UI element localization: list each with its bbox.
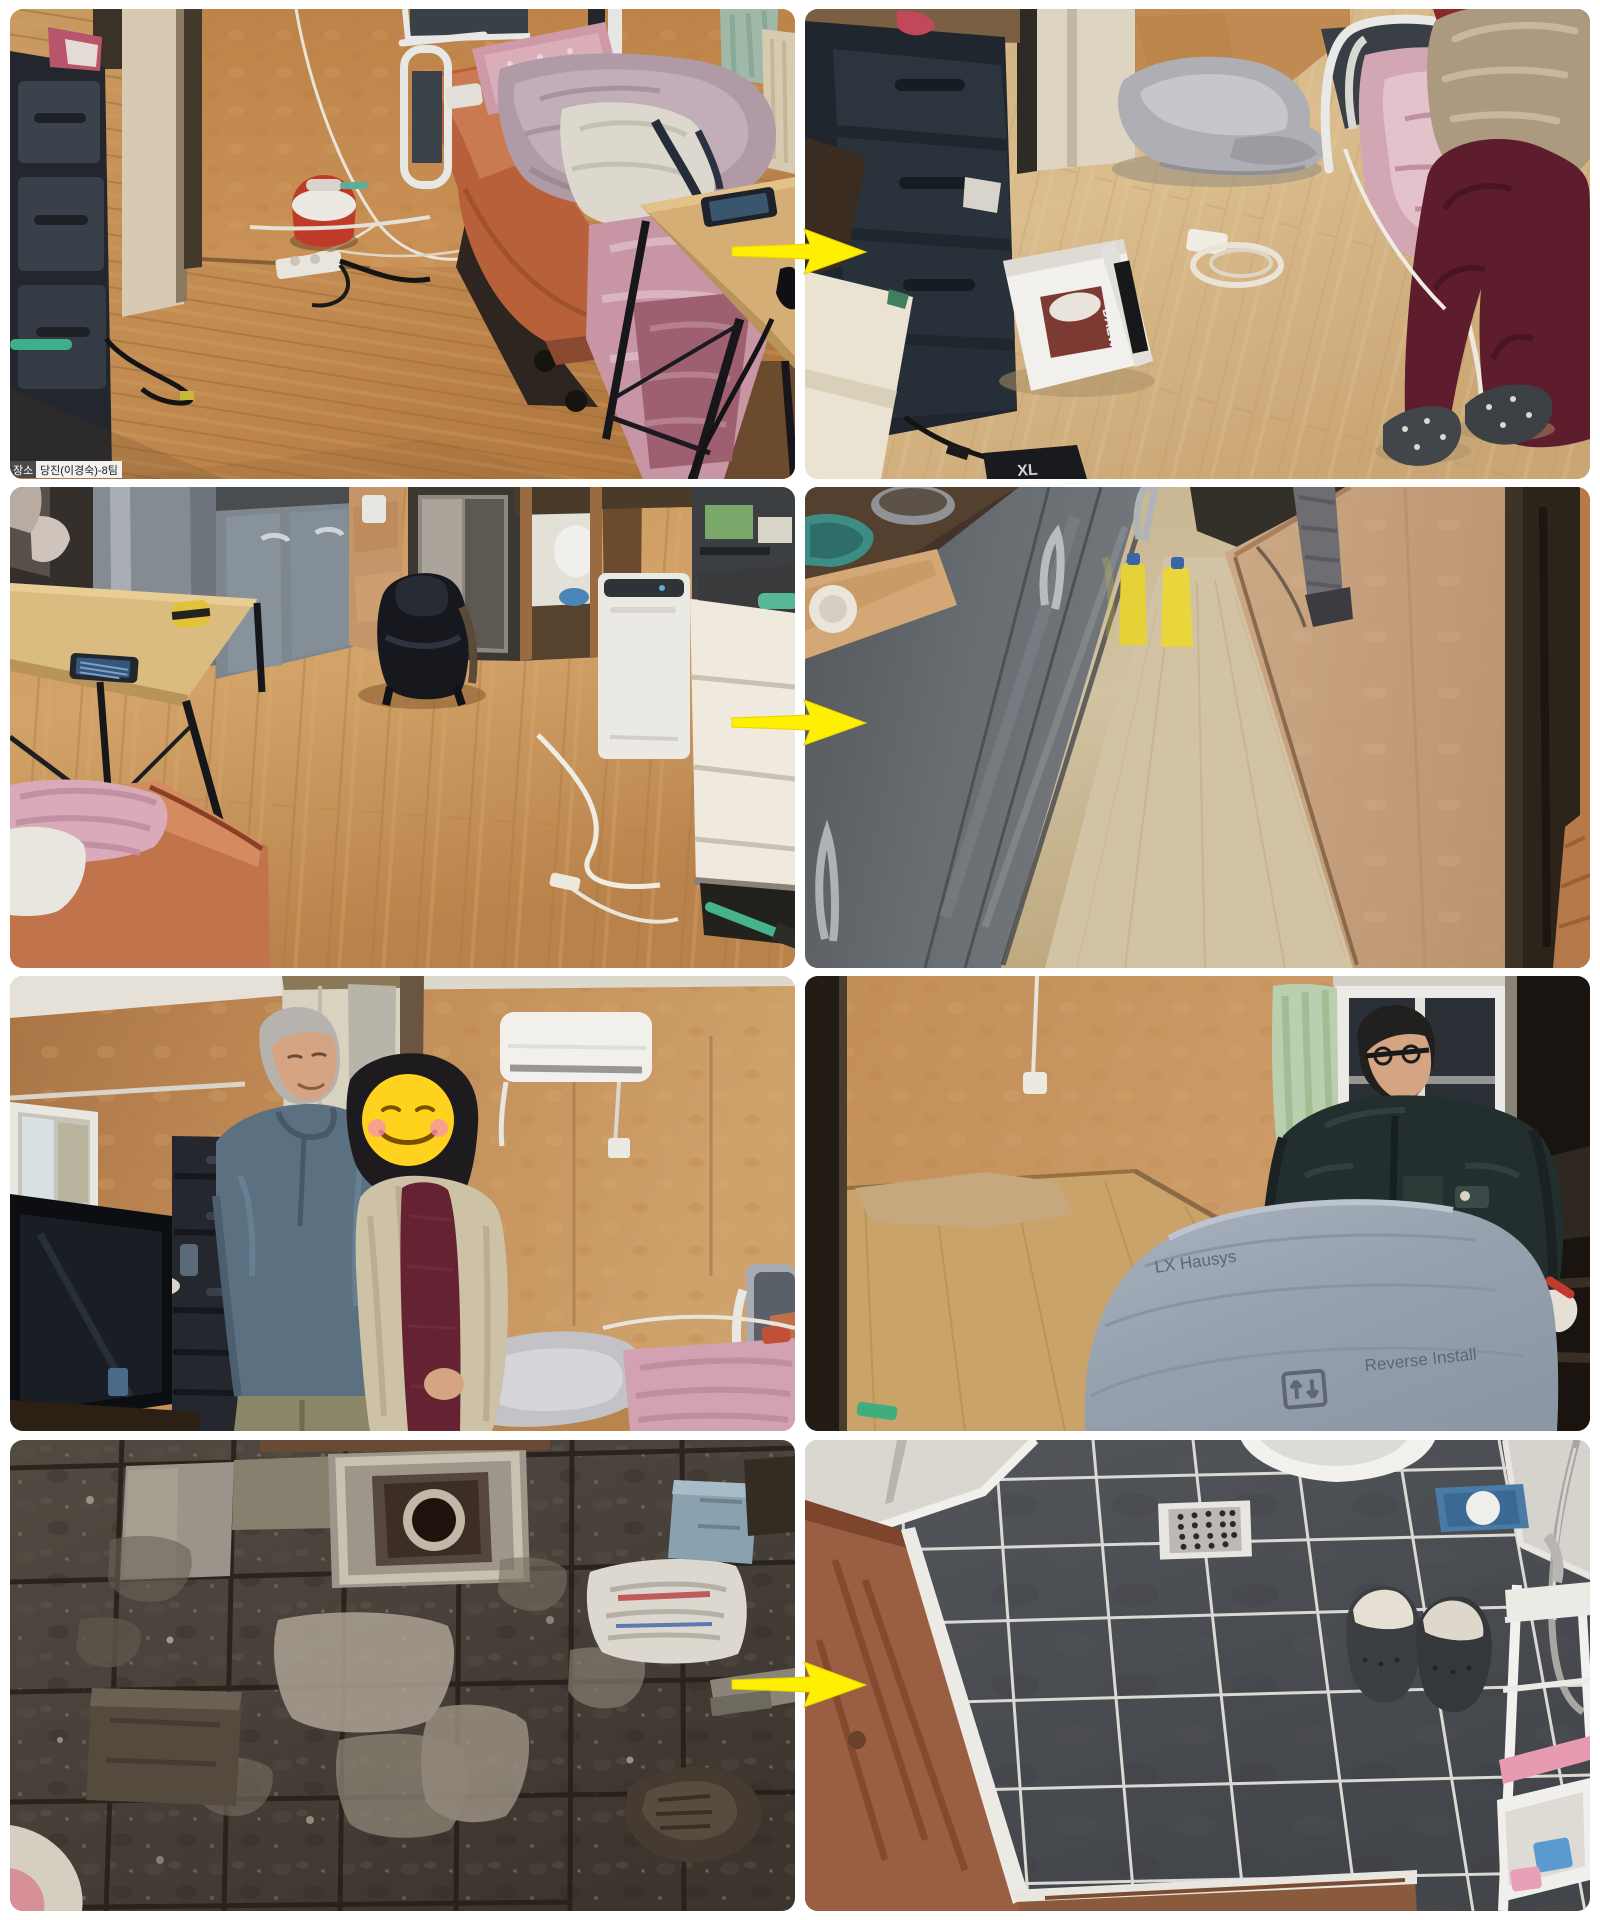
svg-text:XL: XL <box>1017 462 1039 479</box>
svg-text:당진(이경숙)-8팀: 당진(이경숙)-8팀 <box>40 464 118 477</box>
svg-text:장소: 장소 <box>13 464 33 477</box>
